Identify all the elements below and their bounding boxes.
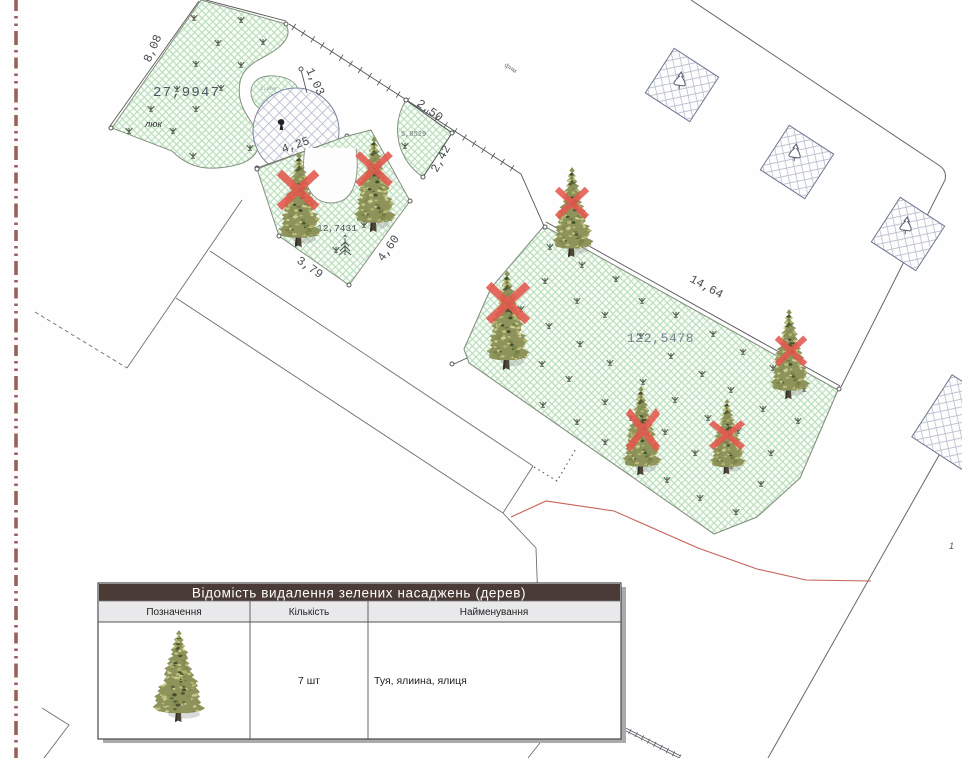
- svg-text:люк: люк: [144, 119, 163, 130]
- svg-text:1,06e: 1,06e: [260, 85, 277, 92]
- svg-text:Відомість видалення зелених на: Відомість видалення зелених насаджень (д…: [192, 586, 526, 601]
- svg-text:Позначення: Позначення: [146, 607, 201, 618]
- svg-text:7 шт: 7 шт: [298, 675, 320, 687]
- svg-text:Туя, ялиина, ялиця: Туя, ялиина, ялиця: [374, 675, 467, 687]
- svg-text:1: 1: [949, 541, 954, 551]
- svg-text:Найменування: Найменування: [460, 607, 529, 618]
- svg-text:Кількість: Кількість: [289, 607, 329, 618]
- svg-text:27,9947: 27,9947: [153, 85, 220, 101]
- svg-text:5,0529: 5,0529: [401, 131, 426, 139]
- svg-text:12,7431: 12,7431: [317, 223, 357, 234]
- svg-text:122,5478: 122,5478: [627, 331, 694, 346]
